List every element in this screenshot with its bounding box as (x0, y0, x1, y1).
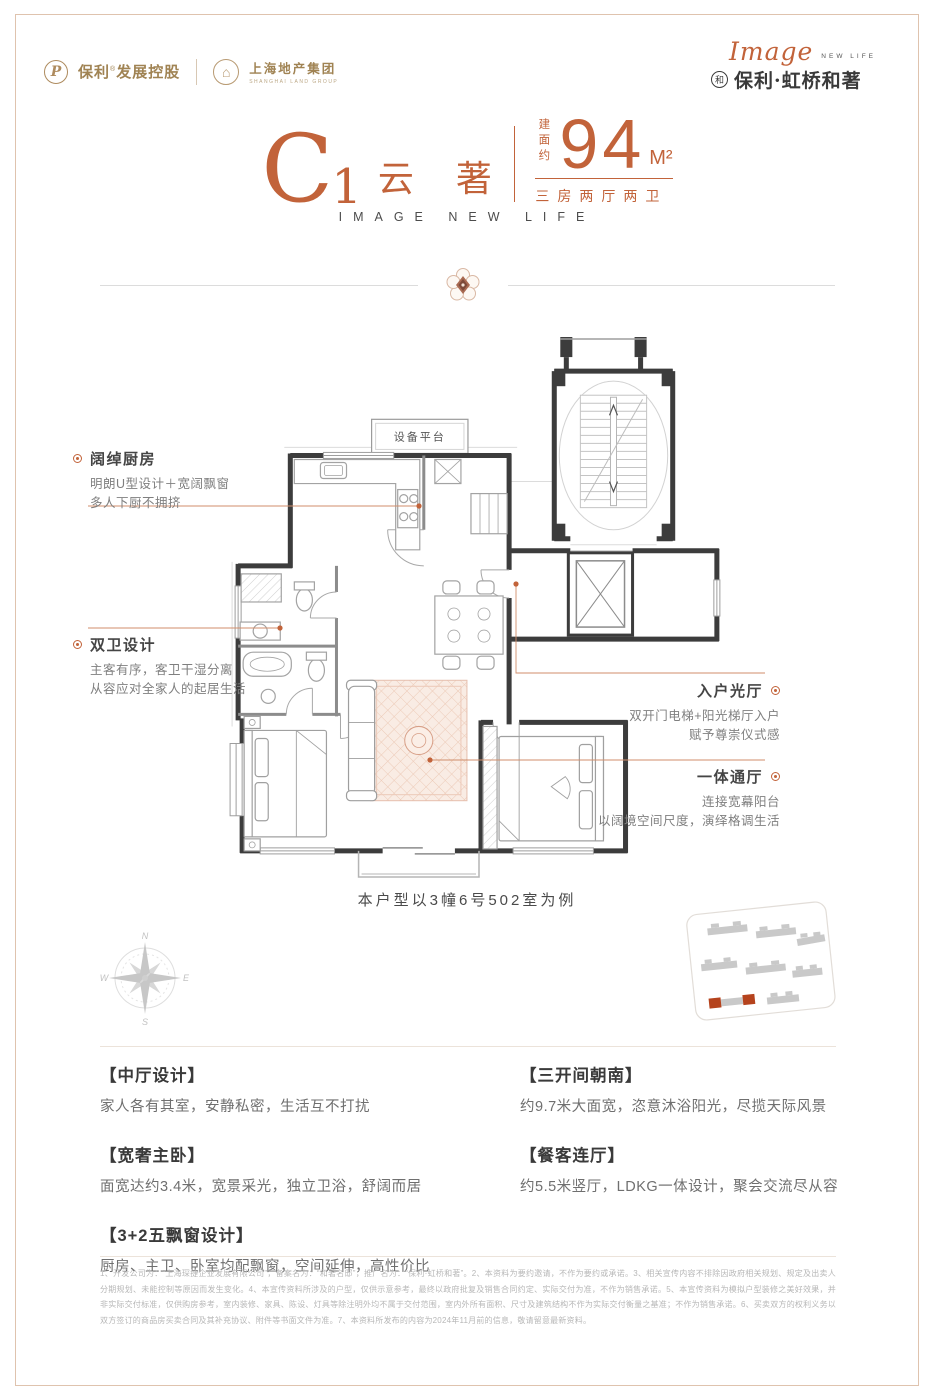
area-value: 94 (559, 116, 645, 173)
compass-north-label: N (142, 931, 149, 941)
compass-east-label: E (183, 973, 190, 983)
compass-west-label: W (100, 973, 110, 983)
annotation-hall-title: 一体通厅 (697, 766, 763, 787)
dining-set (435, 581, 503, 669)
master-bedroom-furniture (244, 716, 326, 850)
elevator-shaft (568, 553, 632, 635)
annotation-entry-line2: 赋予尊崇仪式感 (548, 726, 780, 745)
compass-icon: N S W E (100, 930, 190, 1026)
feature-item: 【餐客连厅】 约5.5米竖厅，LDKG一体设计，聚会交流尽从容 (520, 1142, 850, 1196)
tagline: IMAGE NEW LIFE (0, 210, 934, 224)
kitchen-fixtures (294, 459, 507, 549)
site-map (683, 898, 843, 1033)
sofa (347, 680, 377, 800)
shanghai-land-en: SHANGHAI LAND GROUP (249, 79, 338, 85)
divider-line-right (508, 285, 835, 286)
annotation-kitchen-line2: 多人下厨不拥挤 (90, 494, 303, 513)
project-emblem-icon: 和 (711, 71, 728, 88)
shanghai-land-cn: 上海地产集团 (249, 58, 338, 77)
living-room (347, 680, 467, 800)
feature-desc: 约5.5米竖厅，LDKG一体设计，聚会交流尽从容 (520, 1175, 850, 1196)
area-prefix-label: 建面约 (535, 118, 551, 165)
newlife-text: NEW LIFE (821, 53, 876, 60)
annotation-baths-line2: 从容应对全家人的起居生活 (90, 680, 303, 699)
annotation-baths-line1: 主客有序，客卫干湿分离 (90, 661, 303, 680)
unit-name: 云 著 (378, 150, 508, 202)
features-bottom-rule (100, 1256, 836, 1257)
annotation-hall-line1: 连接宽幕阳台 (548, 793, 780, 812)
annotation-marker-icon (771, 772, 780, 781)
features-right-column: 【三开间朝南】 约9.7米大面宽，恣意沐浴阳光，尽揽天际风景 【餐客连厅】 约5… (520, 1062, 850, 1222)
annotation-hall: 一体通厅 连接宽幕阳台 以阔境空间尺度，演绎格调生活 (548, 766, 780, 831)
logo-divider (196, 59, 197, 85)
poly-name: 保利 (78, 64, 110, 81)
poly-logo-text: 保利®发展控股 (78, 61, 180, 82)
shanghai-land-seal-icon: ⌂ (213, 59, 239, 85)
poly-logo-icon: P (44, 60, 68, 84)
annotation-baths-title: 双卫设计 (90, 634, 156, 655)
shanghai-land-logo: 上海地产集团 SHANGHAI LAND GROUP (249, 58, 338, 85)
annotation-marker-icon (73, 640, 82, 649)
annotation-baths: 双卫设计 主客有序，客卫干湿分离 从容应对全家人的起居生活 (73, 634, 303, 699)
feature-desc: 家人各有其室，安静私密，生活互不打扰 (100, 1095, 500, 1116)
annotation-entry-title: 入户光厅 (697, 680, 763, 701)
feature-item: 【中厅设计】 家人各有其室，安静私密，生活互不打扰 (100, 1062, 500, 1116)
guest-bath-fixtures (240, 574, 314, 640)
feature-title: 【宽奢主卧】 (100, 1142, 500, 1166)
title-divider (514, 126, 516, 202)
stairwell (559, 381, 667, 530)
unit-number: 1 (331, 168, 362, 206)
annotation-marker-icon (73, 454, 82, 463)
area-unit: M² (649, 147, 672, 170)
feature-title: 【餐客连厅】 (520, 1142, 850, 1166)
header-left-logos: P 保利®发展控股 ⌂ 上海地产集团 SHANGHAI LAND GROUP (44, 58, 338, 85)
feature-title: 【中厅设计】 (100, 1062, 500, 1086)
feature-title: 【三开间朝南】 (520, 1062, 850, 1086)
platform-label: 设备平台 (394, 429, 446, 443)
divider-line-left (100, 285, 418, 286)
annotation-kitchen: 阔绰厨房 明朗U型设计＋宽阔飘窗 多人下厨不拥挤 (73, 448, 303, 513)
feature-item: 【宽奢主卧】 面宽达约3.4米，宽景采光，独立卫浴，舒阔而居 (100, 1142, 500, 1196)
feature-desc: 面宽达约3.4米，宽景采光，独立卫浴，舒阔而居 (100, 1175, 500, 1196)
flower-ornament-icon (444, 266, 482, 304)
feature-desc: 约9.7米大面宽，恣意沐浴阳光，尽揽天际风景 (520, 1095, 850, 1116)
features-top-rule (100, 1046, 836, 1047)
unit-letter: C (261, 133, 333, 206)
annotation-marker-icon (771, 686, 780, 695)
compass-south-label: S (142, 1017, 148, 1026)
feature-title: 【3+2五飘窗设计】 (100, 1222, 500, 1246)
annotation-entry: 入户光厅 双开门电梯+阳光梯厅入户 赋予尊崇仪式感 (548, 680, 780, 745)
annotation-entry-line1: 双开门电梯+阳光梯厅入户 (548, 707, 780, 726)
unit-title-block: C 1 云 著 建面约 94 M² 三房两厅两卫 (0, 116, 934, 206)
feature-item: 【三开间朝南】 约9.7米大面宽，恣意沐浴阳光，尽揽天际风景 (520, 1062, 850, 1116)
annotation-kitchen-title: 阔绰厨房 (90, 448, 156, 469)
legal-disclaimer: 1、开发公司为：“上海琛捷企业发展有限公司”，备案名为：“和著名邸”，推广名为：… (100, 1266, 836, 1328)
poly-suffix: 发展控股 (116, 64, 180, 81)
equipment-platform: 设备平台 (372, 419, 468, 453)
area-block: 建面约 94 M² 三房两厅两卫 (535, 116, 672, 206)
image-script-text: Image (729, 42, 813, 62)
annotation-kitchen-line1: 明朗U型设计＋宽阔飘窗 (90, 475, 303, 494)
header-project-logo: Image NEW LIFE 和 保利·虹桥和著 (711, 42, 876, 93)
annotation-hall-line2: 以阔境空间尺度，演绎格调生活 (548, 812, 780, 831)
project-name: 保利·虹桥和著 (734, 66, 862, 93)
